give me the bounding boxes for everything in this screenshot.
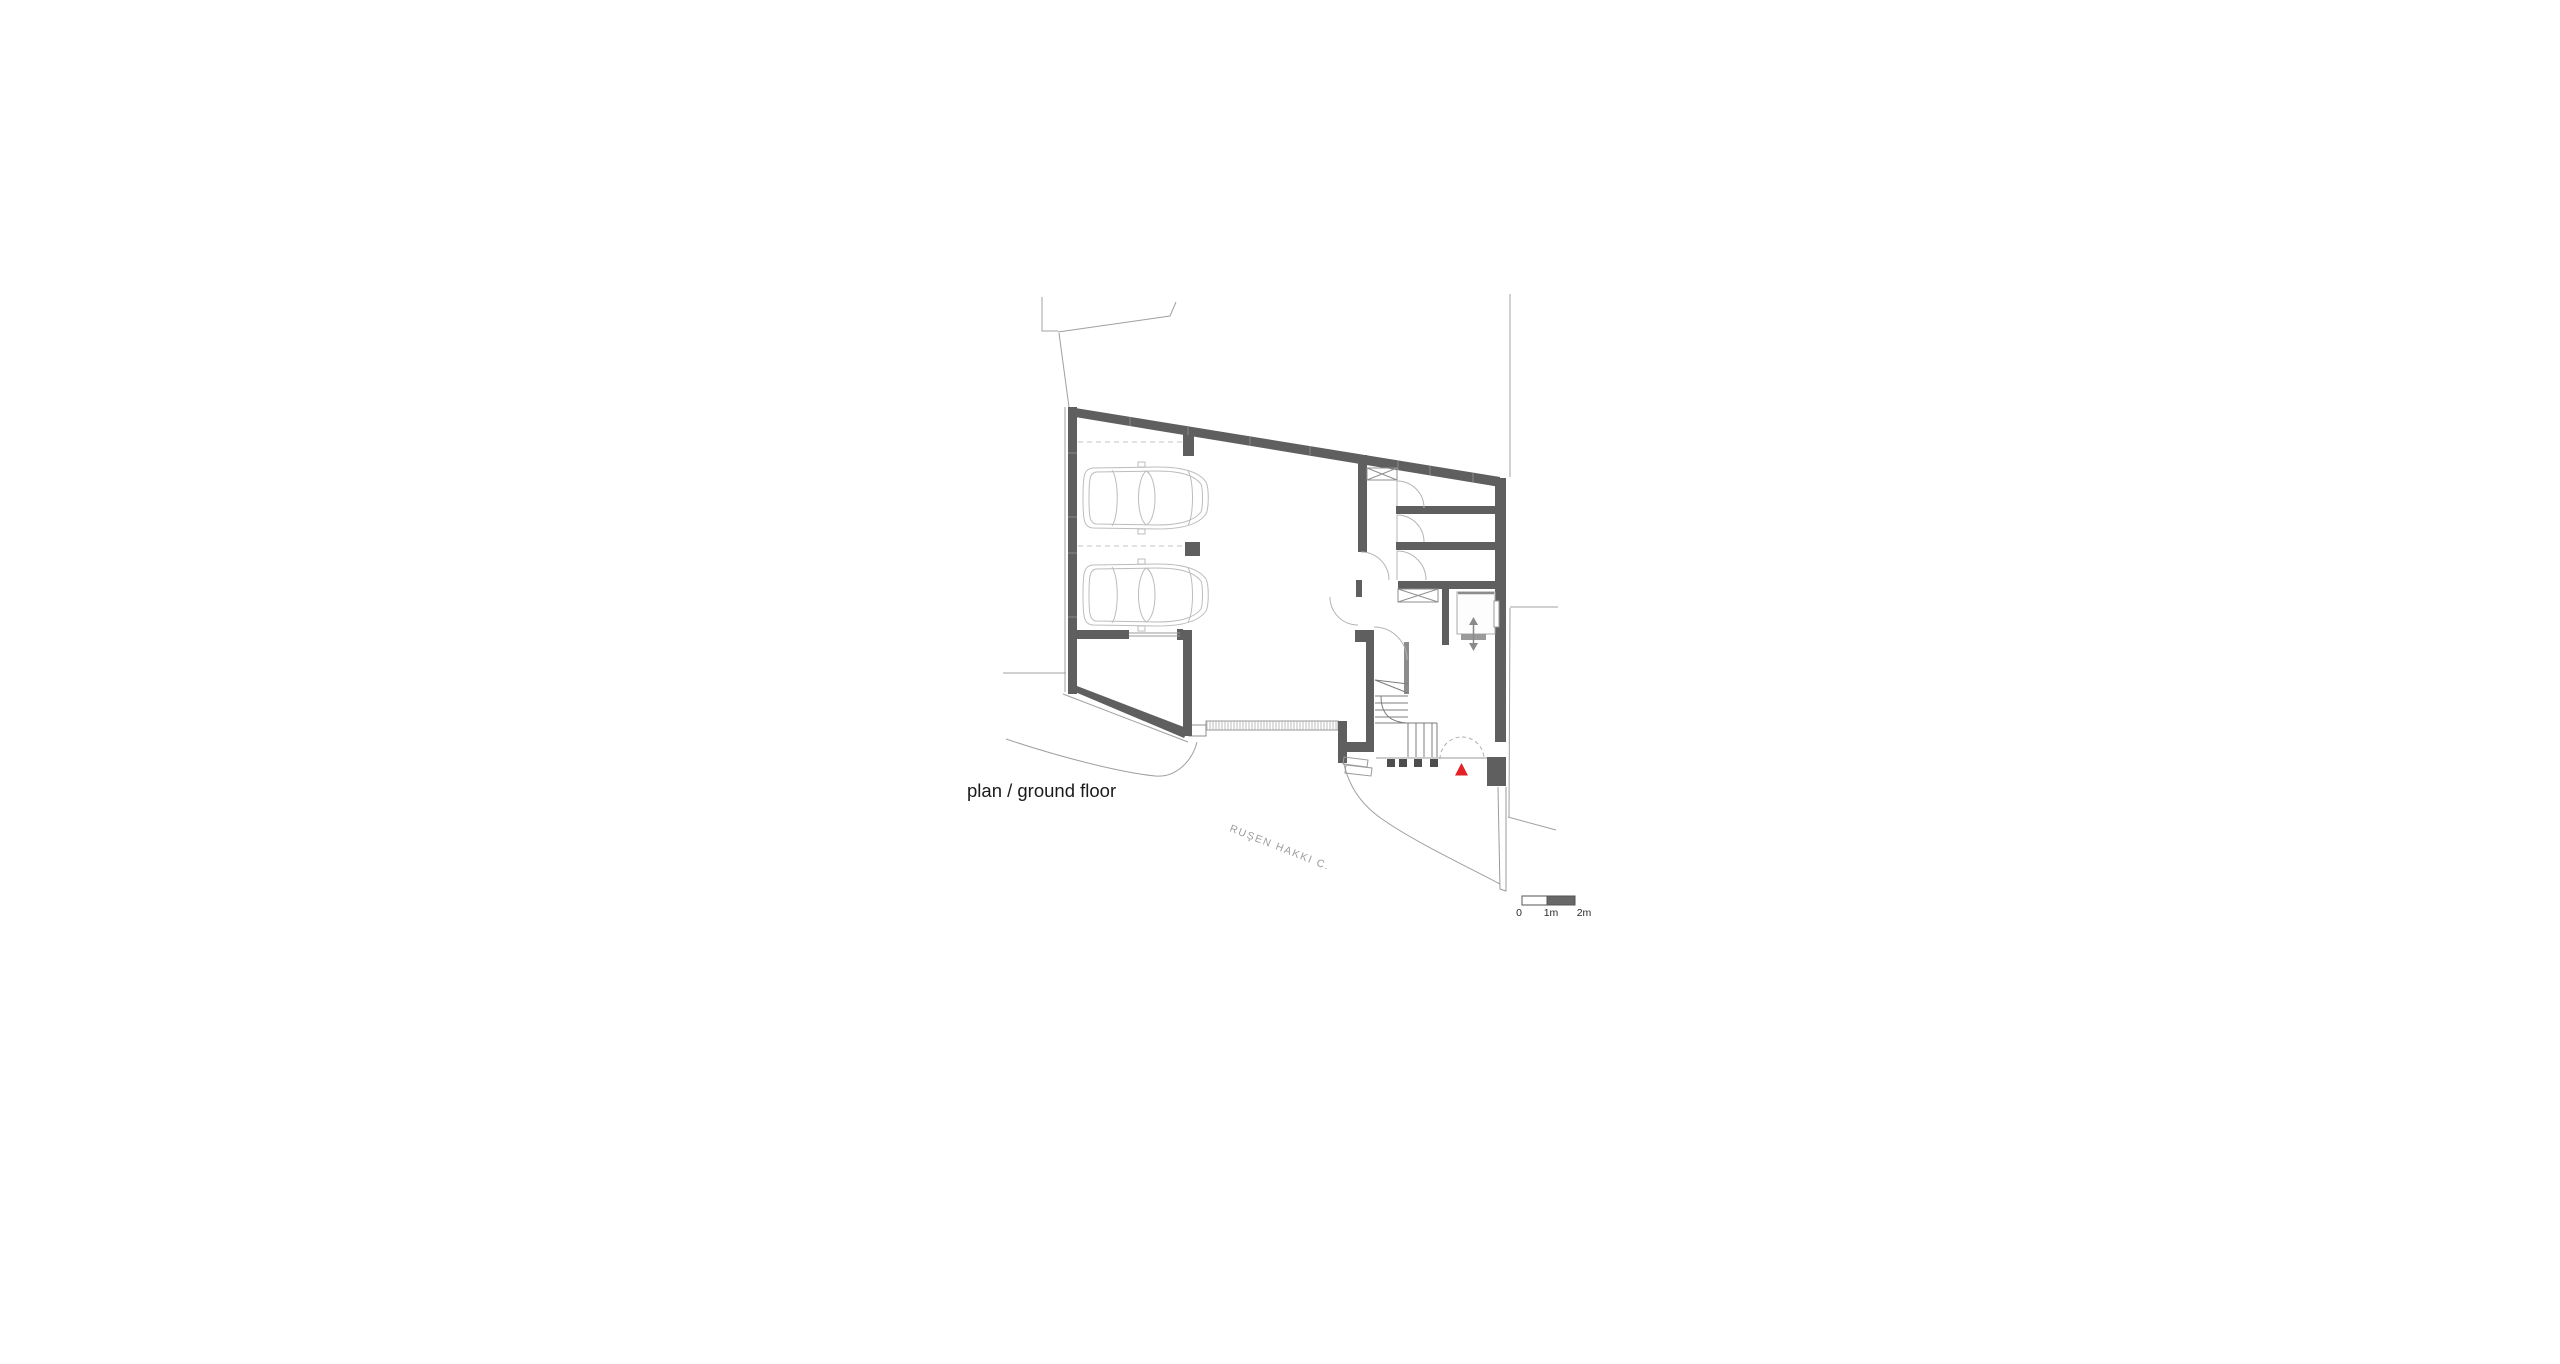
partition-2 xyxy=(1396,542,1496,550)
central-wall-stub xyxy=(1356,580,1362,597)
scale-bar: 0 1m 2m xyxy=(1516,896,1591,919)
hall-wall-west xyxy=(1366,642,1374,744)
exterior-wall-southwest xyxy=(1068,686,1189,738)
elevator-cab xyxy=(1457,592,1495,634)
hall-wall-cap xyxy=(1355,630,1374,642)
scale-label-1m: 1m xyxy=(1544,907,1559,919)
entrance-pier xyxy=(1487,757,1506,786)
car-icon xyxy=(1083,462,1208,534)
threshold-post xyxy=(1399,759,1407,767)
hall-wall-corner xyxy=(1338,721,1347,763)
scale-label-2m: 2m xyxy=(1577,907,1592,919)
exterior-wall-west xyxy=(1068,407,1077,694)
scale-bar-segment-white xyxy=(1522,896,1547,905)
scale-bar-segment-dark xyxy=(1547,896,1575,905)
entrance-door-swing xyxy=(1462,737,1484,759)
elevator-icon xyxy=(1457,592,1499,651)
wall-pier-middle xyxy=(1185,542,1200,556)
threshold-post xyxy=(1430,759,1438,767)
plan-title: plan / ground floor xyxy=(967,780,1116,801)
entrance-marker-icon xyxy=(1455,763,1468,776)
garage-door-hatch xyxy=(1189,721,1338,736)
site-boundary-lines xyxy=(1003,294,1558,830)
window-x-icon xyxy=(1367,468,1397,480)
scale-label-0: 0 xyxy=(1516,907,1522,919)
street-name-label: RUŞEN HAKKI C. xyxy=(1228,823,1332,873)
partition-3-elevator-top xyxy=(1398,581,1496,589)
partition-1 xyxy=(1396,506,1496,514)
threshold-post xyxy=(1387,759,1395,767)
parking-bay-lines xyxy=(1078,442,1184,546)
garage-south-jamb xyxy=(1177,629,1183,640)
threshold-post xyxy=(1414,759,1422,767)
street-lines xyxy=(1006,407,1506,891)
entry-stair xyxy=(1343,642,1487,776)
central-wall xyxy=(1358,455,1367,552)
garage-south-wall xyxy=(1072,630,1129,639)
floor-plan-page: 0 1m 2m plan / ground floor RUŞEN HAKKI … xyxy=(0,0,2560,1364)
elevator-shaft-wall xyxy=(1442,589,1449,645)
storage-room-east-wall xyxy=(1183,630,1192,736)
car-icon xyxy=(1083,559,1208,631)
window-x-icon xyxy=(1398,589,1438,602)
elevator-track xyxy=(1494,601,1499,627)
entrance-door-swing xyxy=(1440,737,1462,759)
exterior-step xyxy=(1345,765,1372,776)
exterior-wall-north xyxy=(1069,407,1500,487)
site-plan-drawing: 0 1m 2m plan / ground floor RUŞEN HAKKI … xyxy=(0,0,2560,1364)
stair-wall xyxy=(1404,642,1409,694)
